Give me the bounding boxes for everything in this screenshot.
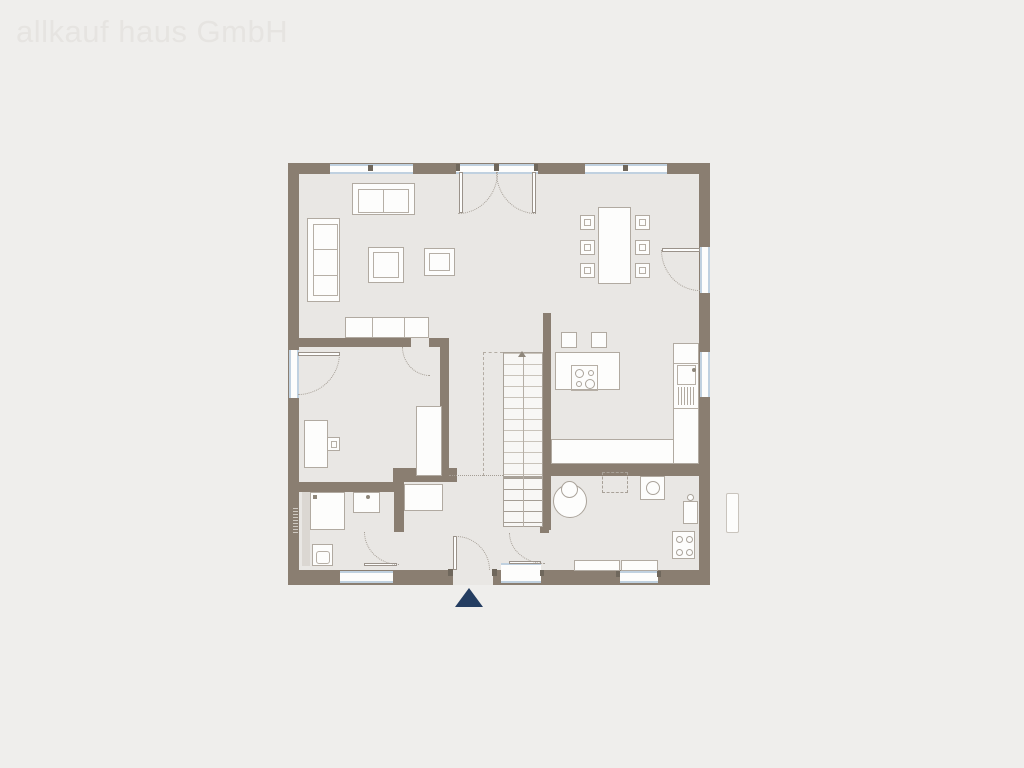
- drainer-icon: [678, 387, 695, 405]
- coffee-table: [368, 247, 404, 283]
- washing-machine: [640, 476, 665, 500]
- kitchen-counter-right: [673, 343, 699, 464]
- cooktop-icon: [571, 365, 598, 391]
- stove: [672, 531, 695, 559]
- washer-drum-icon: [646, 481, 660, 495]
- utility-window: [620, 571, 658, 583]
- bar-stool: [561, 332, 577, 348]
- desk-chair: [327, 437, 340, 451]
- utility-cabinet: [574, 560, 620, 571]
- hall-boundary-dotted-line: [449, 475, 503, 476]
- door-jamb-icon: [448, 569, 453, 576]
- shower-drain-icon: [313, 495, 317, 499]
- wall-bathroom-top: [288, 482, 404, 492]
- window-mullion-icon: [494, 164, 499, 171]
- dining-table: [598, 207, 631, 284]
- faucet-icon: [692, 368, 696, 372]
- bathroom-window: [340, 571, 393, 583]
- watermark-text: allkauf haus GmbH: [16, 14, 288, 50]
- shower: [310, 492, 345, 530]
- front-door-opening: [453, 570, 493, 585]
- staircase-divider: [523, 352, 524, 527]
- fridge: [683, 501, 698, 524]
- window-jamb-icon: [616, 571, 620, 577]
- stair-direction-arrow-icon: [518, 351, 526, 357]
- door-jamb-icon: [492, 569, 497, 576]
- stair-headroom-dashed-left: [483, 352, 484, 476]
- kitchen-counter-bottom: [551, 439, 674, 464]
- window-jamb-icon: [657, 571, 661, 577]
- wall-bathroom-right: [394, 492, 404, 532]
- hall-closet: [404, 484, 443, 511]
- wardrobe: [416, 406, 442, 476]
- wall-living-office-left: [299, 338, 411, 347]
- kitchen-island: [555, 352, 620, 390]
- corner-sofa: [307, 218, 340, 302]
- dining-chair: [635, 240, 650, 255]
- kitchen-window: [700, 352, 710, 397]
- desk: [304, 420, 328, 468]
- floor-plan-scene: allkauf haus GmbH: [0, 0, 1024, 768]
- washbasin: [353, 492, 380, 513]
- dining-chair: [580, 263, 595, 278]
- dining-chair: [580, 240, 595, 255]
- wc: [312, 544, 333, 566]
- window-mullion-icon: [456, 164, 460, 171]
- sideboard: [345, 317, 429, 338]
- window-mullion-icon: [623, 165, 628, 171]
- entrance-arrow-icon: [455, 588, 483, 607]
- bathroom-wall-ledge: [302, 492, 310, 566]
- dining-chair: [580, 215, 595, 230]
- faucet-icon: [366, 495, 370, 499]
- dining-chair: [635, 215, 650, 230]
- terrace-door-window: [700, 247, 710, 293]
- two-seat-sofa: [352, 183, 415, 215]
- appliance-placeholder: [602, 472, 628, 493]
- window-mullion-icon: [368, 165, 373, 171]
- entry-sidelight-window: [501, 563, 541, 583]
- door-jamb-icon: [540, 570, 544, 576]
- wall-micro-label: [293, 508, 298, 534]
- fridge-knob-icon: [687, 494, 694, 501]
- bar-stool: [591, 332, 607, 348]
- utility-basin-bowl: [561, 481, 578, 498]
- wall-living-office-right: [429, 338, 449, 347]
- side-table: [424, 248, 455, 276]
- outdoor-unit: [726, 493, 739, 533]
- utility-cabinet: [621, 560, 658, 571]
- stair-headroom-dashed-top: [483, 352, 503, 353]
- dining-chair: [635, 263, 650, 278]
- window-mullion-icon: [534, 164, 538, 171]
